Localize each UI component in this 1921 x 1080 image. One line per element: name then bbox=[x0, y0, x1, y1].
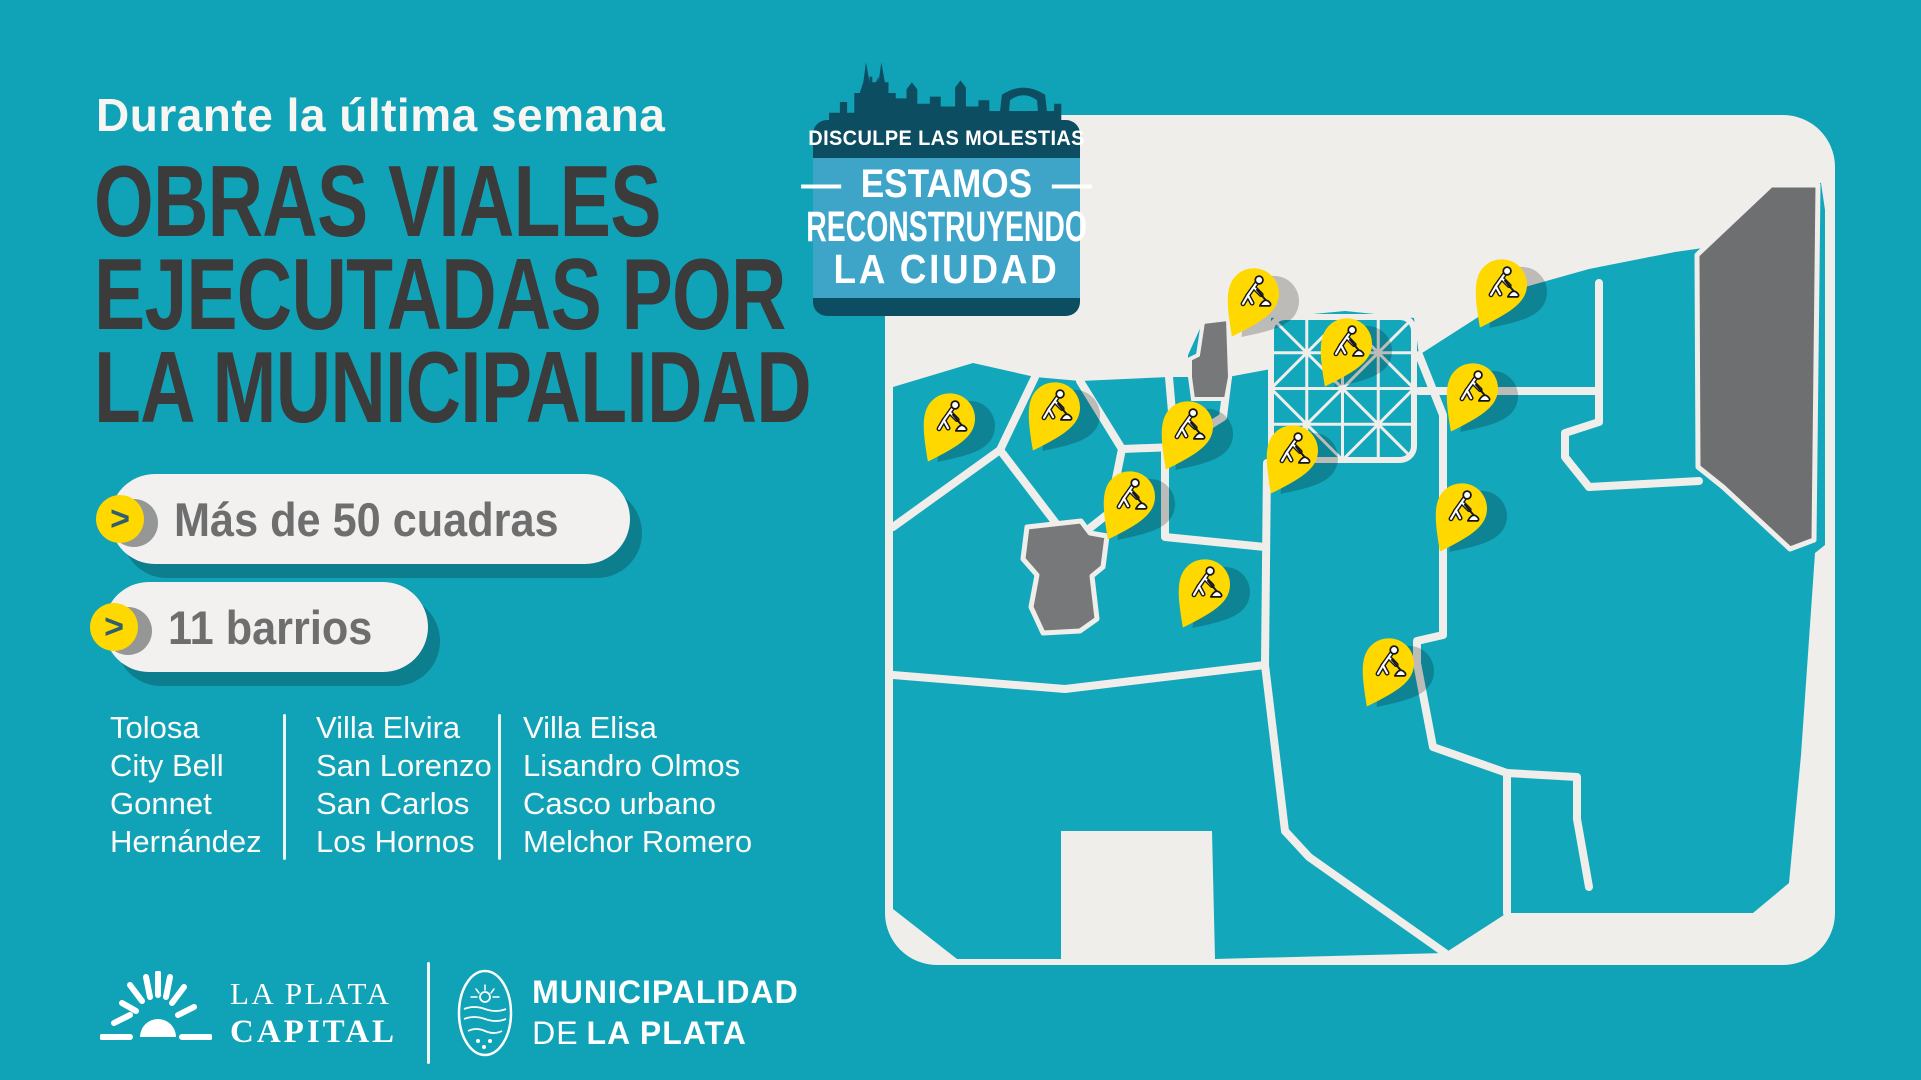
list-item: City Bell bbox=[110, 750, 283, 783]
footer-divider bbox=[427, 962, 430, 1064]
badge-top-band: DISCULPE LAS MOLESTIAS bbox=[813, 120, 1080, 158]
title-line-2: EJECUTADAS POR bbox=[94, 249, 811, 342]
city-skyline-icon bbox=[828, 57, 1066, 120]
list-item: Tolosa bbox=[110, 712, 283, 745]
sunrise-logo-icon bbox=[100, 971, 212, 1055]
brand-text: LA PLATA bbox=[230, 976, 397, 1012]
la-plata-capital-logo: LA PLATA CAPITAL bbox=[230, 976, 397, 1051]
brand-text: LA PLATA bbox=[587, 1015, 747, 1051]
list-item: Lisandro Olmos bbox=[523, 750, 752, 783]
list-item: Melchor Romero bbox=[523, 826, 752, 859]
page-title: OBRAS VIALES EJECUTADAS POR LA MUNICIPAL… bbox=[94, 156, 811, 435]
badge-line-2: —ESTAMOS— bbox=[823, 164, 1070, 204]
footer-brands: LA PLATA CAPITAL MUNICIPALIDAD DELA PLAT… bbox=[100, 962, 799, 1064]
brand-text: DE bbox=[532, 1015, 578, 1051]
neighborhood-column-2: Villa Elvira San Lorenzo San Carlos Los … bbox=[316, 712, 498, 860]
municipalidad-logo: MUNICIPALIDAD DELA PLATA bbox=[532, 974, 799, 1052]
dash: — bbox=[801, 164, 841, 204]
stat-label: Más de 50 cuadras bbox=[174, 492, 559, 547]
list-item: Villa Elisa bbox=[523, 712, 752, 745]
badge-line-1: DISCULPE LAS MOLESTIAS bbox=[808, 127, 1085, 151]
column-divider bbox=[283, 714, 286, 860]
list-item: Casco urbano bbox=[523, 788, 752, 821]
stat-pill-cuadras: > Más de 50 cuadras bbox=[110, 474, 630, 564]
badge-bottom-band bbox=[813, 298, 1080, 316]
list-item: Villa Elvira bbox=[316, 712, 498, 745]
column-divider bbox=[498, 714, 501, 860]
badge-line-4: LA CIUDAD bbox=[834, 249, 1060, 290]
map-region-gray-center bbox=[1023, 521, 1107, 633]
kicker-text: Durante la última semana bbox=[96, 88, 665, 142]
municipal-seal-icon bbox=[456, 967, 514, 1059]
brand-text: CAPITAL bbox=[230, 1014, 397, 1051]
list-item: Los Hornos bbox=[316, 826, 498, 859]
neighborhood-column-3: Villa Elisa Lisandro Olmos Casco urbano … bbox=[523, 712, 752, 860]
chevron-right-icon: > bbox=[90, 603, 138, 651]
chevron-right-icon: > bbox=[96, 495, 144, 543]
list-item: San Lorenzo bbox=[316, 750, 498, 783]
badge-panel: —ESTAMOS— RECONSTRUYENDO LA CIUDAD bbox=[813, 158, 1080, 298]
stat-pill-barrios: > 11 barrios bbox=[104, 582, 428, 672]
neighborhood-column-1: Tolosa City Bell Gonnet Hernández bbox=[110, 712, 283, 860]
list-item: San Carlos bbox=[316, 788, 498, 821]
badge-line-3: RECONSTRUYENDO bbox=[806, 206, 1087, 248]
infographic-poster: Durante la última semana OBRAS VIALES EJ… bbox=[0, 0, 1921, 1080]
list-item: Gonnet bbox=[110, 788, 283, 821]
neighborhood-list: Tolosa City Bell Gonnet Hernández Villa … bbox=[110, 712, 752, 860]
title-line-1: OBRAS VIALES bbox=[94, 156, 811, 249]
dash: — bbox=[1052, 164, 1092, 204]
construction-badge: DISCULPE LAS MOLESTIAS —ESTAMOS— RECONST… bbox=[813, 57, 1080, 316]
brand-text: DELA PLATA bbox=[532, 1015, 799, 1052]
stat-label: 11 barrios bbox=[168, 600, 372, 655]
list-item: Hernández bbox=[110, 826, 283, 859]
brand-text: MUNICIPALIDAD bbox=[532, 974, 799, 1011]
title-line-3: LA MUNICIPALIDAD bbox=[94, 342, 811, 435]
